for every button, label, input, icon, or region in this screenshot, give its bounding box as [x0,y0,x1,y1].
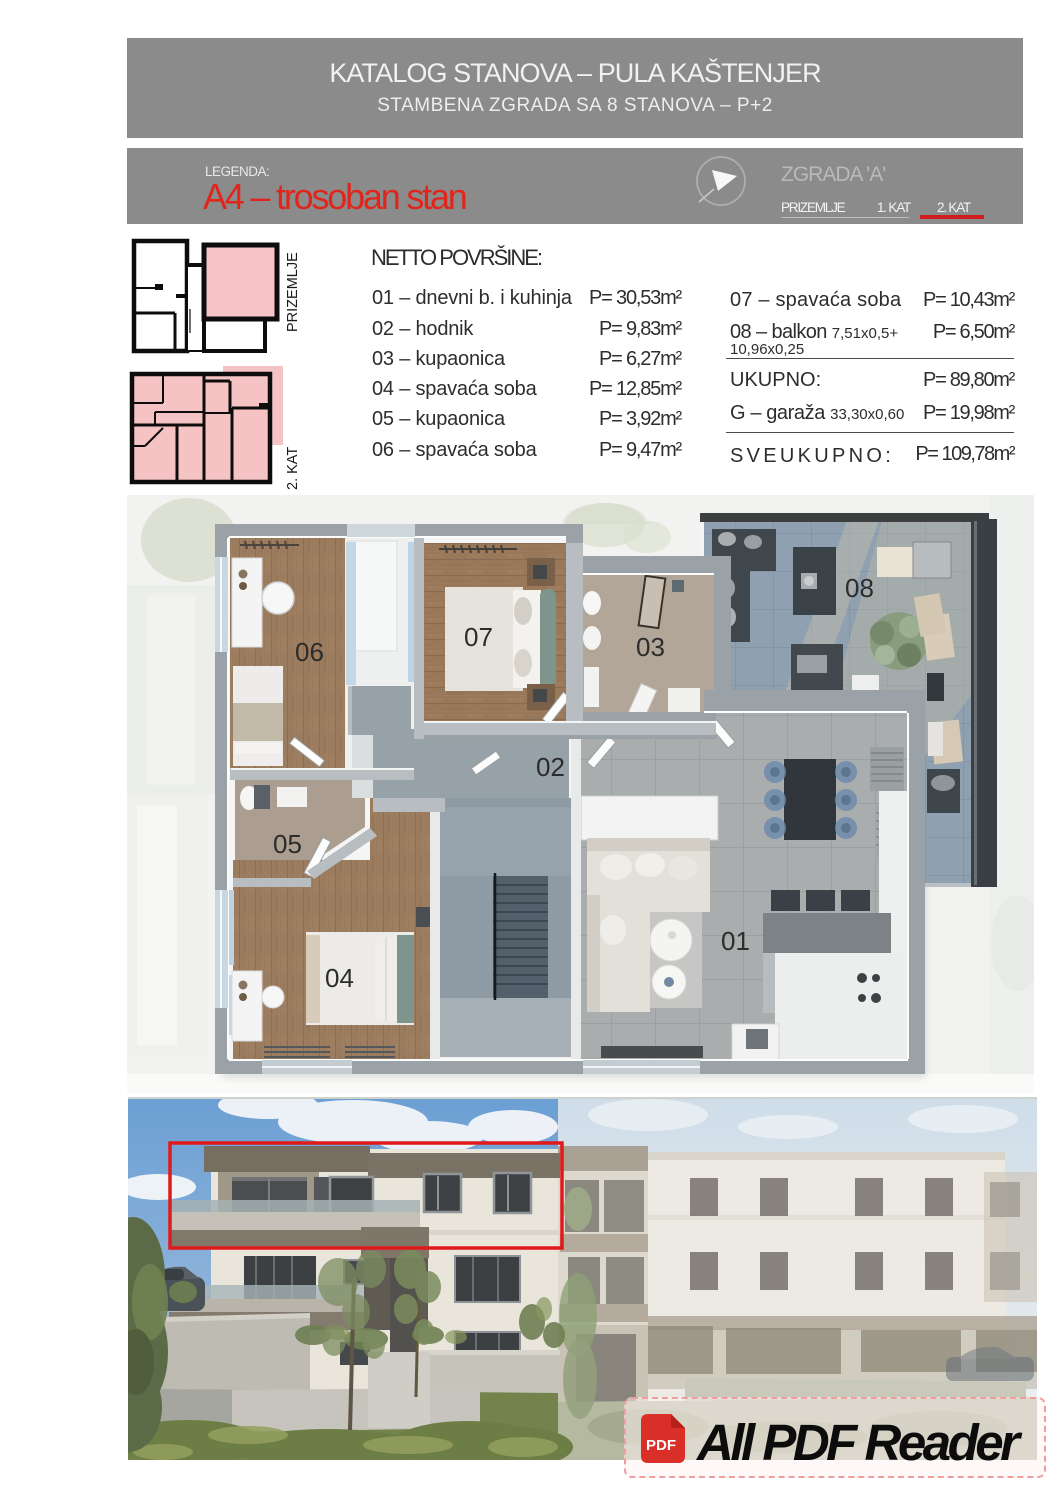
svg-text:05: 05 [273,829,302,859]
svg-text:2. KAT: 2. KAT [285,447,301,490]
svg-text:03: 03 [636,632,665,662]
svg-text:PDF: PDF [646,1437,676,1454]
svg-text:PRIZEMLJE: PRIZEMLJE [285,252,301,332]
svg-text:06: 06 [295,637,324,667]
svg-text:08: 08 [845,573,874,603]
svg-text:07: 07 [464,622,493,652]
svg-text:04: 04 [325,963,354,993]
svg-text:02: 02 [536,752,565,782]
svg-text:01: 01 [721,926,750,956]
